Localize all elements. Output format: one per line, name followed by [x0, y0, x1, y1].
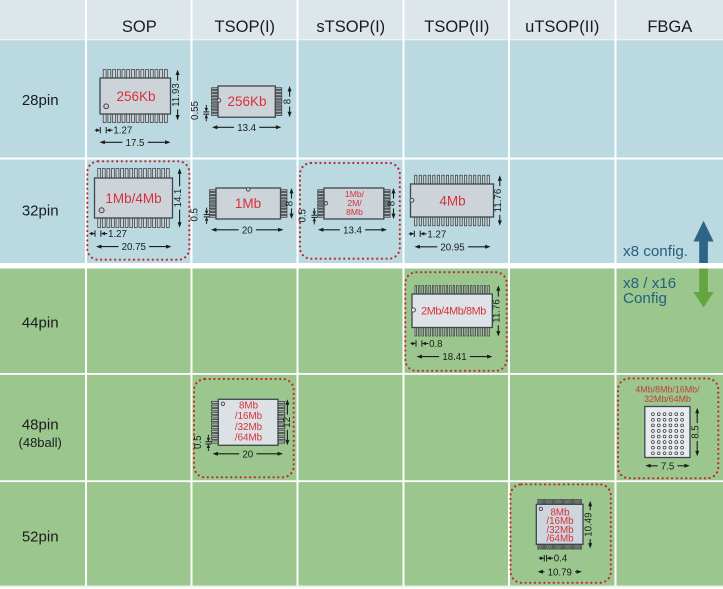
svg-text:20: 20 [242, 225, 253, 236]
svg-text:256Kb: 256Kb [227, 94, 266, 109]
svg-text:7.5: 7.5 [661, 461, 674, 472]
svg-text:256Kb: 256Kb [116, 89, 155, 104]
svg-text:8: 8 [283, 99, 294, 104]
svg-text:0.4: 0.4 [554, 554, 568, 565]
svg-text:/16Mb: /16Mb [235, 411, 263, 422]
svg-text:1.27: 1.27 [113, 126, 132, 137]
svg-text:10.49: 10.49 [584, 513, 595, 537]
svg-text:TSOP(I): TSOP(I) [215, 18, 276, 36]
svg-text:4Mb/8Mb/16Mb/: 4Mb/8Mb/16Mb/ [635, 385, 700, 395]
svg-text:2Mb/4Mb/8Mb: 2Mb/4Mb/8Mb [421, 306, 486, 318]
svg-text:32pin: 32pin [22, 203, 59, 220]
svg-text:20.75: 20.75 [122, 242, 146, 253]
svg-text:20: 20 [242, 449, 253, 460]
svg-text:11.76: 11.76 [493, 189, 504, 213]
svg-text:1Mb/4Mb: 1Mb/4Mb [105, 191, 161, 206]
svg-text:17.5: 17.5 [126, 138, 145, 149]
svg-text:52pin: 52pin [22, 529, 59, 546]
svg-text:0.5: 0.5 [297, 209, 308, 222]
svg-text:4Mb: 4Mb [439, 193, 465, 208]
svg-text:1Mb: 1Mb [235, 196, 261, 211]
svg-text:8.5: 8.5 [691, 425, 702, 438]
svg-text:1.27: 1.27 [108, 229, 127, 240]
svg-text:44pin: 44pin [22, 315, 59, 332]
svg-text:/64Mb: /64Mb [546, 534, 574, 545]
svg-text:uTSOP(II): uTSOP(II) [525, 18, 599, 36]
svg-text:14.1: 14.1 [173, 189, 184, 208]
svg-text:0.5: 0.5 [193, 435, 204, 448]
svg-text:32Mb/64Mb: 32Mb/64Mb [644, 394, 691, 404]
svg-text:TSOP(II): TSOP(II) [424, 18, 489, 36]
svg-text:11.76: 11.76 [492, 299, 503, 323]
svg-text:/32Mb: /32Mb [235, 422, 263, 433]
svg-text:13.4: 13.4 [237, 123, 256, 134]
svg-text:x8 config.: x8 config. [623, 243, 688, 260]
svg-text:28pin: 28pin [22, 92, 59, 109]
svg-text:sTSOP(I): sTSOP(I) [316, 18, 385, 36]
svg-text:12: 12 [282, 417, 293, 428]
svg-text:10.79: 10.79 [548, 567, 572, 578]
svg-text:0.5: 0.5 [189, 208, 200, 221]
svg-text:11.93: 11.93 [171, 83, 182, 107]
svg-text:(48ball): (48ball) [19, 435, 62, 450]
svg-text:48pin: 48pin [22, 416, 59, 433]
svg-text:13.4: 13.4 [343, 225, 362, 236]
svg-text:8: 8 [284, 201, 295, 206]
svg-text:FBGA: FBGA [647, 18, 692, 36]
svg-text:0.55: 0.55 [190, 101, 201, 120]
svg-text:1.27: 1.27 [427, 229, 446, 240]
svg-text:8: 8 [386, 201, 397, 206]
svg-text:0.8: 0.8 [429, 339, 442, 350]
svg-text:Config: Config [623, 290, 667, 307]
svg-text:SOP: SOP [122, 18, 157, 36]
svg-text:/64Mb: /64Mb [235, 432, 263, 443]
svg-text:8Mb: 8Mb [346, 207, 363, 217]
svg-text:18.41: 18.41 [442, 352, 466, 363]
svg-text:20.95: 20.95 [440, 242, 464, 253]
svg-text:8Mb: 8Mb [239, 401, 259, 412]
